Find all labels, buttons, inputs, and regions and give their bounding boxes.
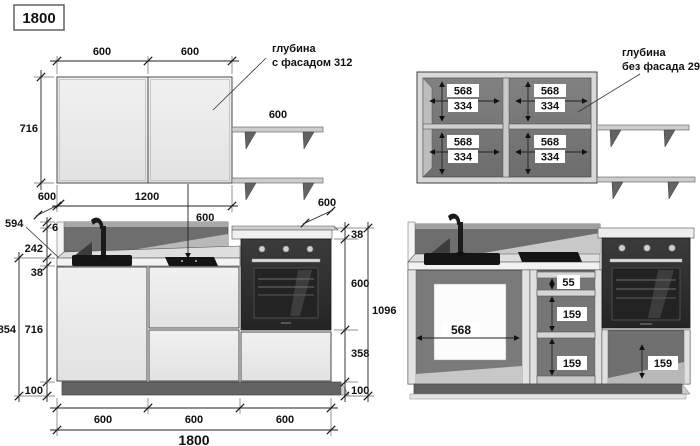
dim-label: 600 bbox=[38, 191, 56, 203]
dim-label: 100 bbox=[25, 385, 43, 397]
dim-label: 159 bbox=[563, 309, 581, 321]
oven-knob bbox=[307, 246, 313, 252]
shelf-bracket bbox=[610, 130, 621, 147]
dim-label: 716 bbox=[25, 324, 43, 336]
dim-label: 600 bbox=[181, 46, 199, 58]
cabinet-shelf bbox=[509, 124, 591, 129]
cabinet-side bbox=[595, 270, 602, 384]
dim-label: 38 bbox=[31, 267, 43, 279]
dim-label: 568 bbox=[541, 86, 559, 98]
wall-shelf-2 bbox=[232, 178, 323, 183]
shelf-bracket bbox=[612, 182, 623, 199]
oven-top-edge bbox=[232, 230, 332, 239]
oven-top-surface bbox=[232, 226, 338, 230]
dim-label: 600 bbox=[93, 46, 111, 58]
cabinet-side bbox=[530, 270, 537, 384]
dim-label: 334 bbox=[454, 101, 473, 113]
burner-dot bbox=[195, 260, 197, 262]
burner-dot bbox=[181, 260, 183, 262]
depth-note-line2: без фасада 296 bbox=[622, 61, 700, 73]
shelf-bracket bbox=[664, 130, 675, 147]
dim-label: 600 bbox=[185, 414, 203, 426]
dim-label: 568 bbox=[454, 137, 472, 149]
faucet-spout bbox=[448, 214, 461, 225]
dim-label: 38 bbox=[351, 229, 363, 241]
dim-total-width: 1800 bbox=[178, 432, 209, 446]
plinth-base bbox=[410, 394, 686, 399]
kitchen-drawing-1800: 1800 600 600 716 600 глубина с фасадом 3… bbox=[0, 0, 700, 446]
dim-label: 6 bbox=[52, 222, 58, 234]
cabinet-side bbox=[408, 270, 416, 384]
oven-knob bbox=[669, 245, 675, 251]
drawer-bottom bbox=[537, 290, 595, 296]
drawer-bottom bbox=[537, 332, 595, 338]
cabinet-side bbox=[684, 330, 690, 384]
cabinet-bottom bbox=[537, 376, 595, 384]
dim-label: 334 bbox=[541, 152, 560, 164]
depth-note-line1: глубина bbox=[272, 43, 316, 55]
oven-top-edge bbox=[598, 228, 694, 238]
plinth bbox=[414, 384, 682, 394]
depth-note-line2: с фасадом 312 bbox=[272, 57, 352, 69]
oven-drawer-front bbox=[241, 332, 331, 381]
faucet bbox=[101, 226, 106, 257]
oven-logo bbox=[281, 322, 291, 324]
oven-knob bbox=[619, 245, 625, 251]
dim-label: 854 bbox=[0, 324, 17, 336]
dim-label: 600 bbox=[276, 414, 294, 426]
dim-label: 600 bbox=[269, 109, 287, 121]
shelf-bracket bbox=[668, 182, 679, 199]
upper-internal-dims: 568 334 568 334 568 334 568 334 глубина … bbox=[430, 47, 700, 174]
oven-knob bbox=[644, 245, 650, 251]
wall-shelf-1 bbox=[232, 127, 323, 132]
dim-label: 600 bbox=[318, 197, 336, 209]
lower-internal-view bbox=[408, 214, 694, 399]
cooktop bbox=[165, 257, 218, 266]
plinth-end bbox=[682, 384, 690, 394]
oven-logo bbox=[640, 323, 652, 325]
faucet-base bbox=[99, 255, 109, 259]
plinth bbox=[62, 382, 341, 395]
dim-label: 1200 bbox=[135, 191, 159, 203]
dim-label: 334 bbox=[454, 152, 473, 164]
dim-label: 600 bbox=[94, 414, 112, 426]
wall-shelf-1 bbox=[597, 125, 689, 130]
faucet bbox=[458, 222, 463, 254]
dim-label: 358 bbox=[351, 348, 369, 360]
dim-label: 594 bbox=[5, 218, 24, 230]
oven-knob bbox=[259, 246, 265, 252]
dim-label: 568 bbox=[541, 137, 559, 149]
dim-label: 568 bbox=[451, 323, 471, 337]
drawer-front-bottom bbox=[149, 330, 239, 381]
cabinet-side bbox=[602, 330, 608, 384]
scheme-title: 1800 bbox=[22, 10, 55, 27]
base-door-sink bbox=[57, 267, 147, 381]
dim-label: 716 bbox=[20, 123, 38, 135]
faucet-base bbox=[456, 252, 466, 256]
cabinet-side bbox=[522, 270, 530, 384]
dim-label: 1096 bbox=[372, 305, 396, 317]
shelf-bracket bbox=[245, 132, 256, 149]
dim-label: 334 bbox=[541, 101, 560, 113]
shelf-bracket bbox=[303, 183, 314, 200]
oven-handle bbox=[252, 259, 320, 262]
cabinet-shelf bbox=[423, 124, 503, 129]
dim-label: 600 bbox=[351, 278, 369, 290]
wall-shelf-2 bbox=[597, 177, 695, 182]
upper-cabinet-front bbox=[57, 77, 232, 183]
dim-label: 55 bbox=[562, 277, 574, 289]
backsplash-top-edge bbox=[415, 224, 600, 229]
dim-label: 159 bbox=[563, 358, 581, 370]
dim-label: 100 bbox=[351, 385, 369, 397]
upper-front-view bbox=[57, 77, 323, 200]
title-box: 1800 bbox=[14, 5, 64, 30]
drawer-front-top bbox=[149, 267, 239, 328]
dim-label: 568 bbox=[454, 86, 472, 98]
shelf-bracket bbox=[303, 132, 314, 149]
dim-label: 242 bbox=[25, 243, 43, 255]
center-divider bbox=[503, 78, 509, 177]
oven-handle bbox=[610, 259, 682, 262]
dim-label: 600 bbox=[196, 212, 214, 224]
dim-label: 159 bbox=[654, 358, 672, 370]
cooktop bbox=[518, 252, 582, 262]
depth-note-line1: глубина bbox=[622, 47, 666, 59]
oven-knob bbox=[283, 246, 289, 252]
shelf-bracket bbox=[245, 183, 256, 200]
lower-front-view bbox=[57, 218, 349, 395]
